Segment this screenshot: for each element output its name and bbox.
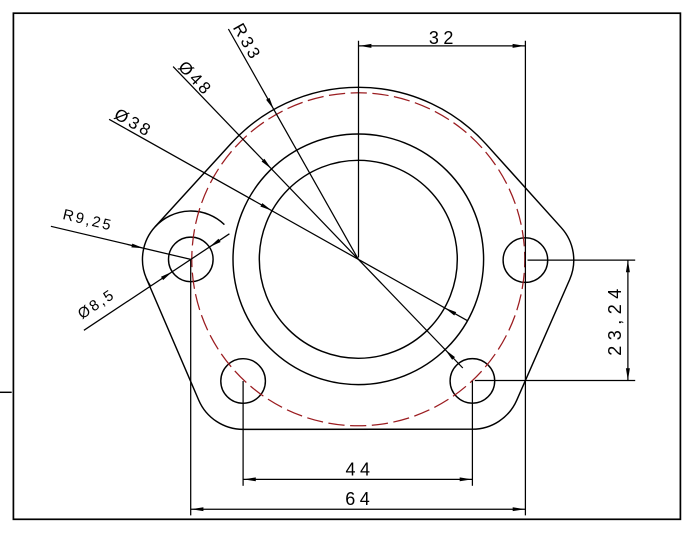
svg-text:44: 44 <box>345 459 374 479</box>
svg-text:32: 32 <box>429 28 458 48</box>
svg-text:23,24: 23,24 <box>605 283 625 356</box>
svg-text:64: 64 <box>345 489 374 509</box>
